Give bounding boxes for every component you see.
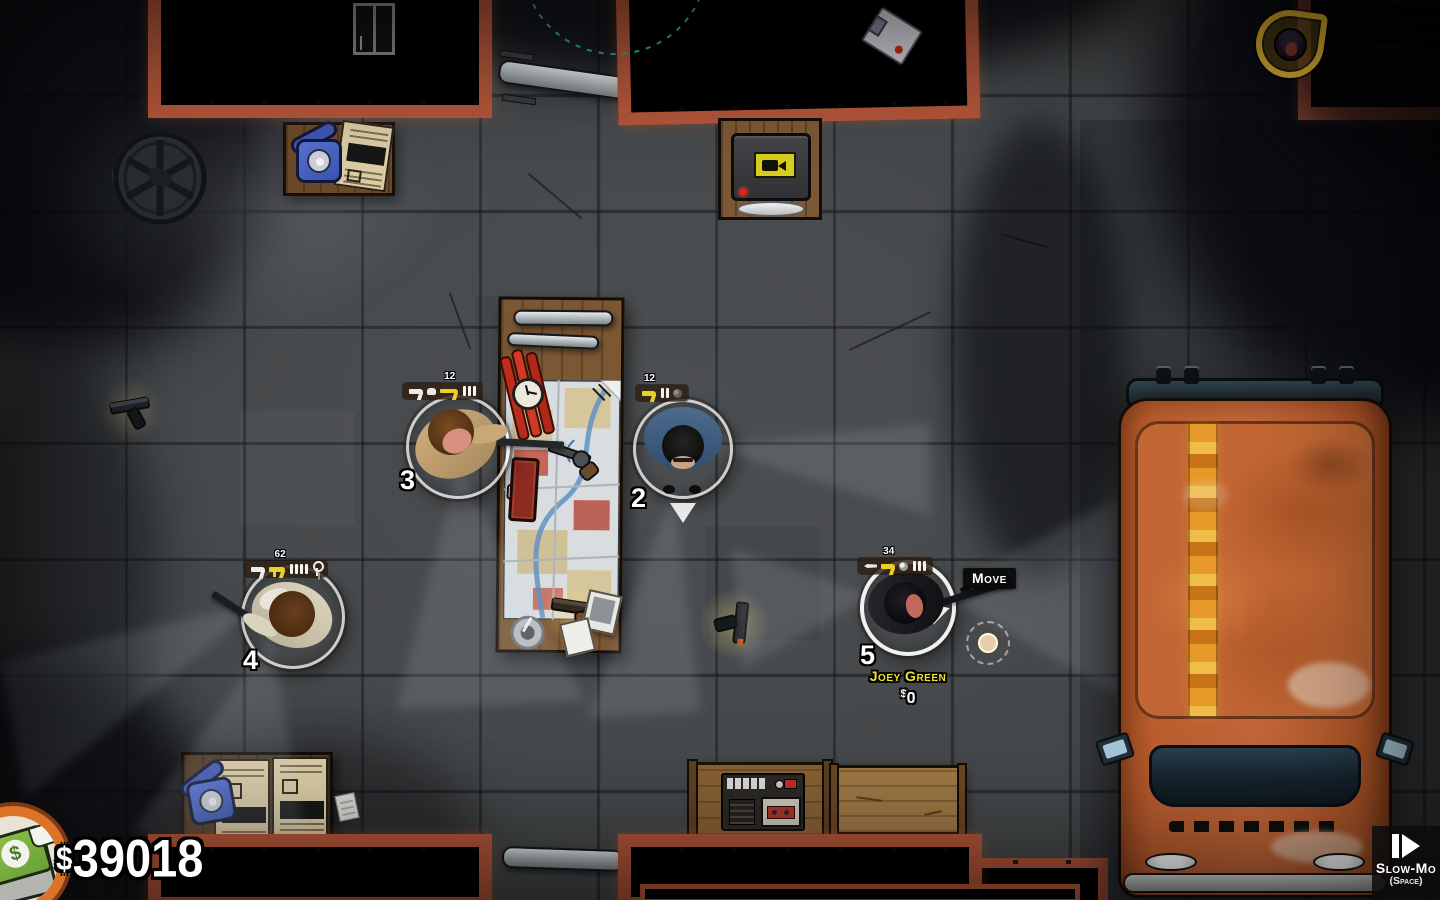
- wooden-crate: [1354, 0, 1440, 55]
- move-tooltip: Move: [963, 568, 1016, 589]
- window-frame: [353, 3, 395, 55]
- van-roof: [1135, 421, 1375, 719]
- character-4[interactable]: 4 62: [241, 565, 345, 669]
- wooden-bench: [833, 765, 963, 835]
- drum-magazine-icon: [673, 389, 682, 398]
- ammo-count: 12: [644, 374, 655, 384]
- character-number: 4: [243, 647, 258, 674]
- ammo-count: 34: [883, 547, 894, 557]
- fluorescent-tube: [502, 846, 625, 872]
- money-counter: $39018: [0, 806, 203, 900]
- ammo-bar[interactable]: 62: [245, 561, 327, 577]
- move-target-reticle: [966, 621, 1010, 665]
- rust-stripe: [1188, 424, 1218, 716]
- character-5-joey-green[interactable]: 5 Joey Green $0 34: [860, 560, 956, 656]
- character-number: 5: [860, 642, 875, 669]
- magazine-ticks: [463, 386, 476, 396]
- character-number: 2: [631, 485, 646, 512]
- magazine-ticks: [913, 561, 926, 571]
- ammo-bar[interactable]: 12: [636, 385, 688, 401]
- security-camera-box: [718, 118, 822, 220]
- room-top-left: [148, 0, 492, 118]
- fluorescent-tube: [513, 310, 613, 327]
- cassette-radio: [721, 773, 805, 831]
- step-forward-icon: [1392, 833, 1420, 859]
- ammo-count: 12: [444, 372, 455, 382]
- front-bumper: [1123, 873, 1387, 893]
- facing-arrow-icon: [670, 503, 696, 523]
- inner-room-frame: [640, 884, 1080, 900]
- ammo-bar[interactable]: 12: [403, 383, 482, 399]
- manhole-cover: [112, 130, 208, 226]
- character-2[interactable]: 2 12: [633, 399, 733, 499]
- camera-icon: [762, 160, 778, 171]
- money-amount: $39018: [56, 827, 203, 889]
- character-name: Joey Green: [830, 668, 986, 684]
- rusty-van: [1112, 372, 1398, 900]
- camera-label: [754, 152, 796, 178]
- windshield: [1149, 745, 1361, 807]
- key-icon: [312, 561, 321, 577]
- drum-magazine-icon: [899, 562, 908, 571]
- rotary-phone: [294, 133, 344, 185]
- shotgun-icon-selected: [440, 389, 458, 393]
- pistol-icon: [251, 567, 265, 572]
- wall-phone-desk: [283, 122, 395, 196]
- pistol-icon: [409, 389, 423, 394]
- magazine-ticks: [661, 388, 669, 398]
- slow-mo-label: Slow-Mo: [1376, 861, 1436, 876]
- knife-icon: [864, 564, 877, 568]
- slow-mo-button[interactable]: Slow-Mo (Space): [1372, 826, 1440, 900]
- red-briefcase: [508, 457, 540, 523]
- ammo-bar[interactable]: 34: [858, 558, 932, 574]
- floor-pistol-left[interactable]: [104, 386, 162, 440]
- headlight-left: [1145, 853, 1197, 871]
- slow-mo-key-hint: (Space): [1390, 876, 1423, 888]
- pistol-icon-selected: [881, 564, 895, 569]
- van-body: [1118, 398, 1392, 898]
- radio-table: [692, 762, 828, 838]
- game-viewport[interactable]: 2 12 3 12 4 62: [0, 0, 1440, 900]
- fluorescent-tube: [507, 332, 600, 350]
- character-number: 3: [400, 467, 415, 494]
- led-indicator: [739, 188, 747, 196]
- planning-table: [495, 296, 624, 653]
- tommy-gun-icon-selected: [269, 567, 285, 572]
- character-cash: $0: [830, 688, 986, 708]
- melee-icon: [427, 388, 436, 395]
- floor-pistol-center[interactable]: [702, 592, 764, 658]
- glasses: [673, 458, 693, 462]
- room-top-center: [615, 0, 980, 126]
- head: [269, 591, 315, 637]
- newspaper-page: [272, 757, 328, 843]
- ammo-count: 62: [275, 550, 286, 560]
- magazine-ticks: [290, 564, 308, 574]
- character-3[interactable]: 3 12: [406, 395, 510, 499]
- headlight-right: [1313, 853, 1365, 871]
- pistol-icon-selected: [642, 391, 656, 396]
